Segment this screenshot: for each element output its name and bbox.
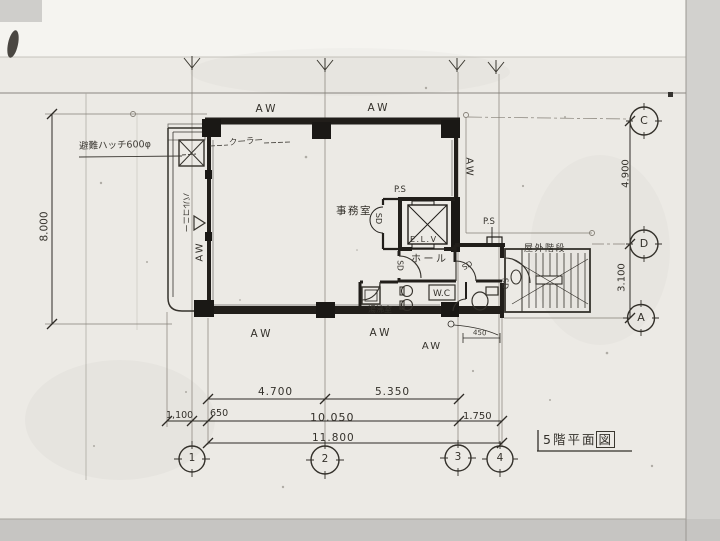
drawing-title: 5階平面図	[543, 432, 615, 447]
grid-col-1: 1	[182, 451, 202, 466]
scan-artifacts	[0, 0, 720, 541]
room-label-balcony: バルコニー	[179, 187, 194, 239]
door-triangle-marker	[194, 216, 205, 230]
room-label-wc: W.C	[433, 287, 450, 302]
dim-bottom-5350: 5.350	[375, 385, 410, 400]
basin	[511, 270, 521, 284]
grid-row-d: D	[634, 236, 654, 251]
dim-bottom-650: 650	[210, 406, 228, 421]
window-tag-aw-left: AW	[193, 237, 208, 267]
window-tag-aw-right: AW	[462, 153, 477, 183]
dim-bottom-10050: 10.050	[310, 410, 355, 425]
dim-bottom-1750: 1.750	[463, 409, 492, 424]
shaft-tag-ps-left: P.S	[394, 183, 406, 198]
dim-bottom-total: 11.800	[312, 431, 355, 446]
dim-right-lower: 3.100	[615, 258, 630, 298]
floorplan-linework	[0, 0, 720, 541]
drawing-title-boxed-char: 図	[596, 431, 615, 448]
grid-col-4: 4	[490, 451, 510, 466]
escape-hatch-symbol	[179, 140, 204, 166]
window-tag-aw-top-2: AW	[364, 101, 394, 116]
door-tag-sd-ps: SD	[371, 208, 386, 229]
grid-col-2: 2	[315, 452, 335, 467]
room-label-outdoor-stairs: 屋外階段	[524, 242, 566, 257]
stair-rail	[536, 276, 562, 284]
door-tag-sd-stair: SD	[498, 274, 513, 294]
window-tag-aw-bottom-1: AW	[247, 327, 277, 342]
window-tag-aw-bottom-3: AW	[417, 339, 447, 354]
room-label-kitchenette: 湯沸室	[368, 302, 392, 317]
dim-bottom-4700: 4.700	[258, 385, 293, 400]
room-label-office: 事務室	[336, 204, 372, 219]
dim-small: 450	[473, 326, 487, 342]
note-escape-hatch: 避難ハッチ600φ	[79, 137, 151, 154]
door-tag-sd-hall: SD	[393, 256, 408, 276]
room-label-elevator: E.L.V	[410, 232, 438, 247]
grid-row-a: A	[631, 310, 651, 325]
note-cooler: クーラー	[229, 134, 264, 151]
drawing-title-text: 5階平面	[543, 432, 596, 447]
grid-col-3: 3	[448, 450, 468, 465]
floorplan-sheet: AW AW AW AW AW AW AW SD SD SD SD P.S P.S…	[0, 0, 720, 541]
window-tag-aw-bottom-2: AW	[366, 326, 396, 341]
dim-bottom-1100: 1,100	[166, 408, 193, 423]
dim-right-upper: 4.900	[619, 154, 634, 194]
room-label-hall: ホール	[411, 252, 449, 267]
grid-row-c: C	[634, 113, 654, 128]
dim-left-total: 8.000	[38, 205, 53, 249]
window-tag-aw-top-1: AW	[252, 102, 282, 117]
shaft-tag-ps-right: P.S	[483, 215, 495, 230]
